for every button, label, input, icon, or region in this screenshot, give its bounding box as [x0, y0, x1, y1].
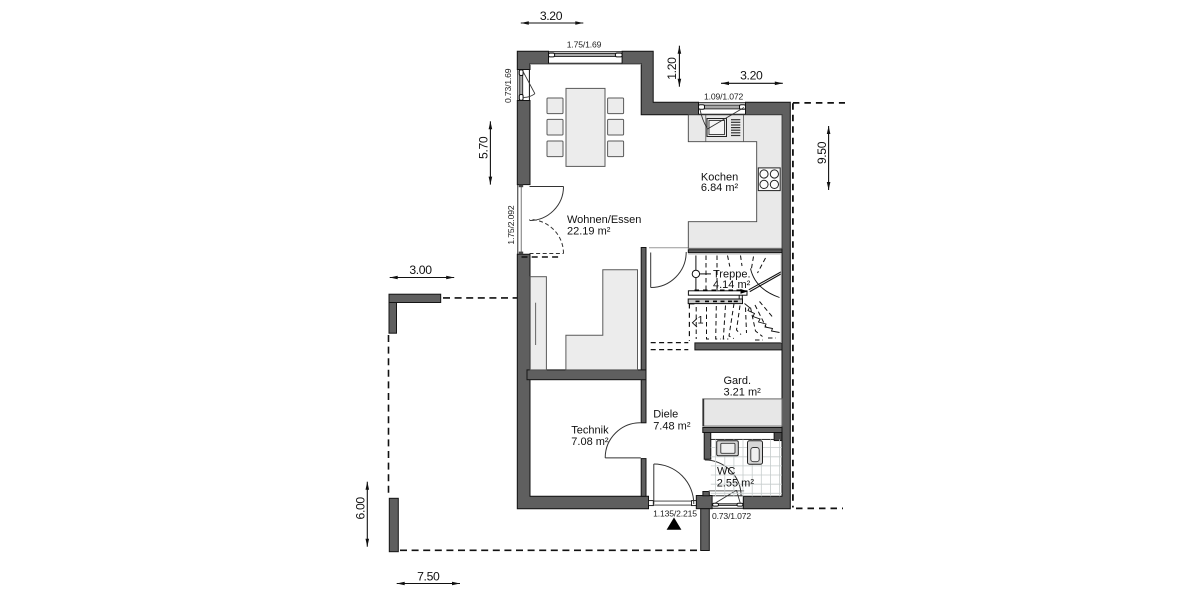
svg-text:7.50: 7.50: [417, 570, 440, 584]
svg-text:1.75/1.69: 1.75/1.69: [567, 40, 602, 50]
svg-text:3.21 m²: 3.21 m²: [724, 387, 762, 399]
svg-text:1: 1: [698, 315, 704, 327]
svg-text:7.48 m²: 7.48 m²: [653, 421, 691, 433]
svg-text:1.20: 1.20: [665, 57, 679, 80]
svg-text:22.19 m²: 22.19 m²: [567, 225, 611, 237]
svg-text:6.00: 6.00: [353, 497, 367, 520]
svg-text:1.135/2.215: 1.135/2.215: [653, 509, 697, 519]
svg-text:7.08 m²: 7.08 m²: [571, 436, 609, 448]
svg-text:1.75/2.092: 1.75/2.092: [506, 205, 516, 244]
svg-text:Gard.: Gard.: [724, 375, 752, 387]
svg-text:WC: WC: [717, 466, 735, 478]
svg-text:3.00: 3.00: [409, 263, 432, 277]
svg-text:0.73/1.072: 0.73/1.072: [712, 511, 751, 521]
svg-text:0.73/1.69: 0.73/1.69: [503, 68, 513, 103]
svg-text:5.70: 5.70: [477, 136, 491, 159]
svg-text:4.14 m²: 4.14 m²: [713, 279, 751, 291]
svg-text:Diele: Diele: [653, 409, 678, 421]
svg-text:2.55 m²: 2.55 m²: [717, 477, 755, 489]
svg-text:3.20: 3.20: [740, 69, 763, 83]
svg-text:9.50: 9.50: [815, 141, 829, 164]
svg-text:6.84 m²: 6.84 m²: [701, 182, 739, 194]
svg-text:Technik: Technik: [571, 424, 609, 436]
svg-text:1.09/1.072: 1.09/1.072: [704, 91, 743, 101]
svg-text:Wohnen/Essen: Wohnen/Essen: [567, 214, 641, 226]
svg-text:3.20: 3.20: [540, 9, 563, 23]
